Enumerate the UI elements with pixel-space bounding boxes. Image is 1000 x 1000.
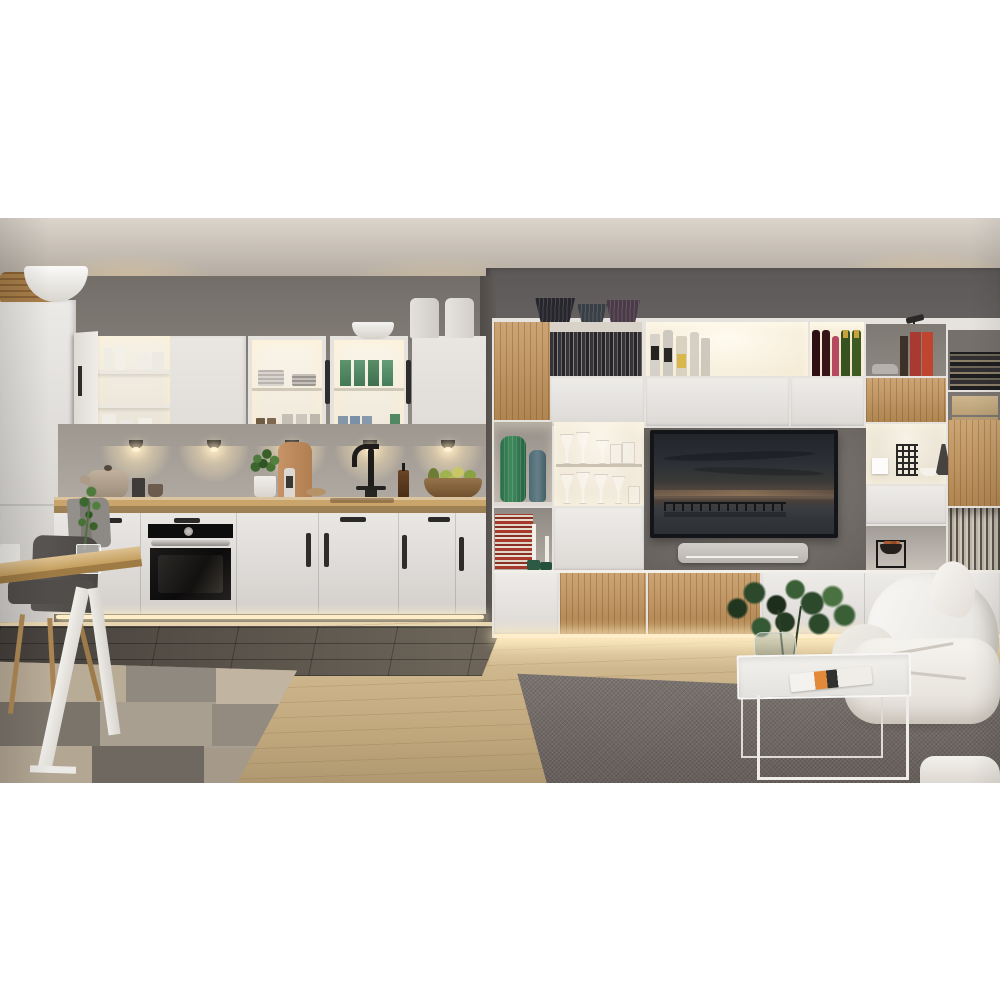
- white-throw: [920, 756, 1000, 783]
- white-jar: [138, 354, 149, 370]
- soundbar: [678, 543, 808, 563]
- puck-light-glow: [132, 447, 140, 452]
- champagne-foil: [843, 330, 848, 338]
- champagne-foil: [854, 330, 859, 338]
- unit-base-cabinet: [494, 572, 558, 634]
- glass-shelf: [556, 464, 642, 467]
- metal-sculpture: [896, 444, 918, 476]
- door-handle: [78, 366, 82, 396]
- ceramic-canister: [445, 298, 474, 338]
- cabinet-seam: [455, 513, 456, 616]
- green-glass: [354, 360, 365, 386]
- candle: [545, 536, 549, 562]
- rug-square: [92, 746, 204, 783]
- grinder-label: [286, 476, 293, 488]
- door-handle: [306, 533, 311, 567]
- plant-pot: [254, 476, 276, 497]
- pier-reflection: [664, 512, 786, 517]
- wooden-box: [952, 396, 998, 415]
- teapot-lid: [104, 465, 112, 471]
- oven-knob: [184, 527, 193, 536]
- cloud-streak: [694, 466, 824, 478]
- cabinet-shelf: [96, 404, 170, 408]
- red-book: [922, 332, 933, 376]
- drawer-handle: [428, 517, 450, 522]
- white-jar: [152, 352, 164, 370]
- decorative-grass-vase: [535, 298, 575, 322]
- black-mug: [132, 478, 145, 498]
- decorative-grass-vase: [577, 304, 607, 322]
- oven-door-window: [158, 555, 223, 593]
- liquor-bottle-label: [651, 346, 659, 360]
- liquor-bottle: [690, 332, 699, 376]
- flap-door: [646, 378, 789, 426]
- green-glass: [382, 360, 393, 386]
- green-glass: [368, 360, 379, 386]
- rose-wine-bottle: [832, 336, 839, 376]
- red-book: [910, 332, 921, 376]
- puck-light-glow: [210, 447, 218, 452]
- tumbler: [610, 444, 622, 464]
- flap-door: [791, 378, 864, 426]
- white-speaker-cube: [872, 458, 888, 474]
- decorative-grass-vase: [606, 300, 640, 322]
- unit-panel: [866, 486, 946, 524]
- red-wine-bottle: [822, 330, 830, 376]
- cabinet-seam: [398, 513, 399, 616]
- basil-plant: [246, 446, 284, 478]
- candle-holder: [527, 560, 540, 570]
- toe-kick-led: [56, 615, 484, 619]
- whisky-label: [677, 354, 686, 368]
- candle-holder: [540, 562, 552, 570]
- soap-pump: [402, 463, 405, 471]
- tumbler: [622, 442, 635, 464]
- cabinet-handle: [406, 360, 411, 404]
- small-cup: [148, 484, 163, 497]
- liquor-bottle-label: [664, 348, 672, 362]
- horizon-glow: [654, 490, 834, 496]
- drawer-handle: [174, 518, 200, 523]
- pier-posts: [664, 502, 786, 511]
- oak-door-panel: [866, 378, 946, 422]
- oak-door-panel: [494, 322, 550, 420]
- cabinet-shelf: [252, 388, 322, 391]
- oak-base-cabinet: [560, 572, 646, 634]
- toy-car: [872, 364, 898, 374]
- cloud-streak: [664, 449, 814, 462]
- rug-square: [126, 662, 216, 702]
- sink-inset: [330, 498, 394, 503]
- countertop: [54, 497, 486, 513]
- oven-handle: [151, 540, 230, 546]
- door-handle: [459, 537, 464, 571]
- candle: [532, 524, 536, 560]
- door-handle: [324, 533, 329, 567]
- coffee-table-legs: [757, 695, 909, 780]
- tumbler: [628, 486, 640, 504]
- unit-panel: [550, 378, 644, 426]
- soap-bottle: [398, 470, 409, 498]
- page: { "image_type": "interior-photograph", "…: [0, 0, 1000, 1000]
- drawer-handle: [340, 517, 366, 522]
- cabinet-seam: [236, 513, 237, 616]
- puck-light-glow: [444, 447, 452, 452]
- stacked-books: [950, 352, 1000, 390]
- green-glass: [340, 360, 351, 386]
- interior-photo: [0, 218, 1000, 783]
- plate-stack: [292, 374, 316, 386]
- fruit-bowl: [424, 478, 482, 498]
- white-bottle: [104, 348, 113, 370]
- cabinet-shelf: [96, 370, 170, 374]
- tv-screen-seascape: [654, 434, 834, 534]
- ceramic-canister: [410, 298, 439, 338]
- dark-book: [900, 336, 908, 376]
- oak-door-panel: [948, 420, 1000, 506]
- cabinet-handle: [325, 360, 330, 404]
- faucet-tip: [352, 458, 357, 467]
- white-bottle: [116, 346, 125, 370]
- cabinet-seam: [318, 513, 319, 616]
- liquor-bottle: [701, 338, 710, 376]
- teal-vase: [529, 450, 546, 502]
- record-tops: [550, 322, 642, 332]
- cubby-shelf: [494, 502, 552, 506]
- plate-stack: [258, 370, 284, 386]
- soundbar-status: [686, 556, 798, 558]
- green-vase: [500, 436, 526, 502]
- cabinet-shelf: [334, 388, 404, 391]
- door-handle: [402, 535, 407, 569]
- unit-door: [554, 508, 644, 570]
- small-tray: [306, 488, 326, 496]
- vinyl-records: [550, 332, 642, 376]
- red-wine-bottle: [812, 330, 820, 376]
